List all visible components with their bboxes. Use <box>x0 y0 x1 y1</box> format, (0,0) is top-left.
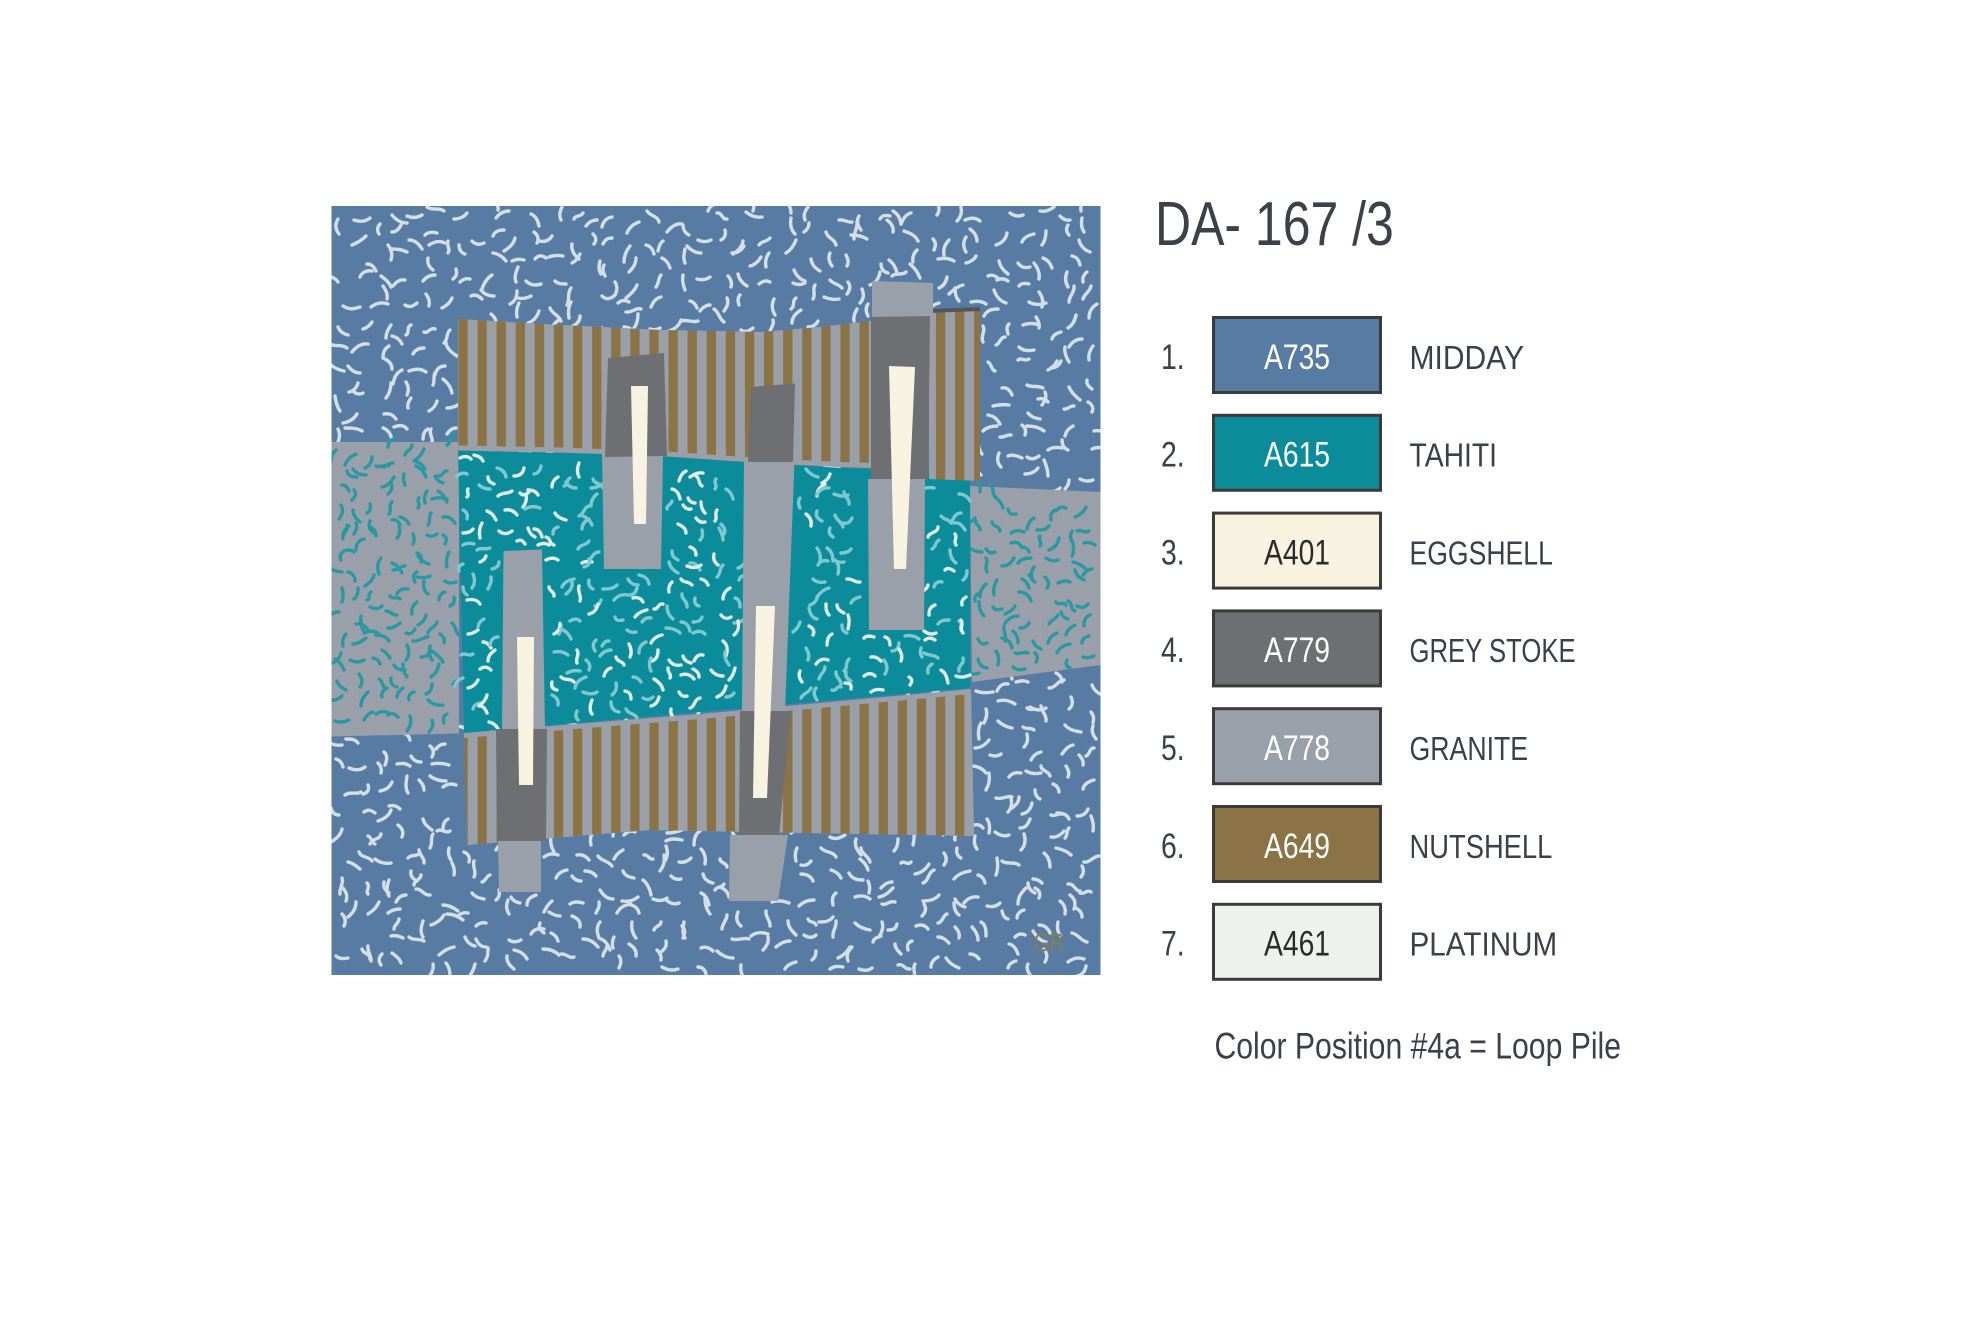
svg-text:GRANITE: GRANITE <box>1410 731 1529 767</box>
svg-text:A401: A401 <box>1264 532 1330 572</box>
svg-text:GREY STOKE: GREY STOKE <box>1410 633 1576 670</box>
svg-text:A461: A461 <box>1264 924 1330 964</box>
svg-text:TAHITI: TAHITI <box>1410 437 1498 475</box>
svg-text:Color Position #4a = Loop Pile: Color Position #4a = Loop Pile <box>1215 1026 1622 1068</box>
svg-text:A615: A615 <box>1264 435 1330 475</box>
svg-text:MIDDAY: MIDDAY <box>1410 338 1525 376</box>
svg-text:1.: 1. <box>1161 337 1185 377</box>
svg-text:GR: GR <box>1034 928 1065 957</box>
svg-text:2.: 2. <box>1161 435 1185 475</box>
svg-text:NUTSHELL: NUTSHELL <box>1410 829 1553 865</box>
svg-text:A779: A779 <box>1264 630 1330 670</box>
svg-text:6.: 6. <box>1161 826 1185 866</box>
svg-text:A649: A649 <box>1264 826 1330 866</box>
svg-text:3.: 3. <box>1161 532 1185 572</box>
svg-text:A778: A778 <box>1264 728 1330 768</box>
svg-text:EGGSHELL: EGGSHELL <box>1410 536 1553 572</box>
svg-text:7.: 7. <box>1161 924 1185 964</box>
svg-text:PLATINUM: PLATINUM <box>1410 926 1558 963</box>
svg-text:5.: 5. <box>1161 728 1185 768</box>
svg-text:DA- 167 /3: DA- 167 /3 <box>1155 189 1394 258</box>
svg-text:A735: A735 <box>1264 337 1330 377</box>
svg-text:4.: 4. <box>1161 630 1185 670</box>
